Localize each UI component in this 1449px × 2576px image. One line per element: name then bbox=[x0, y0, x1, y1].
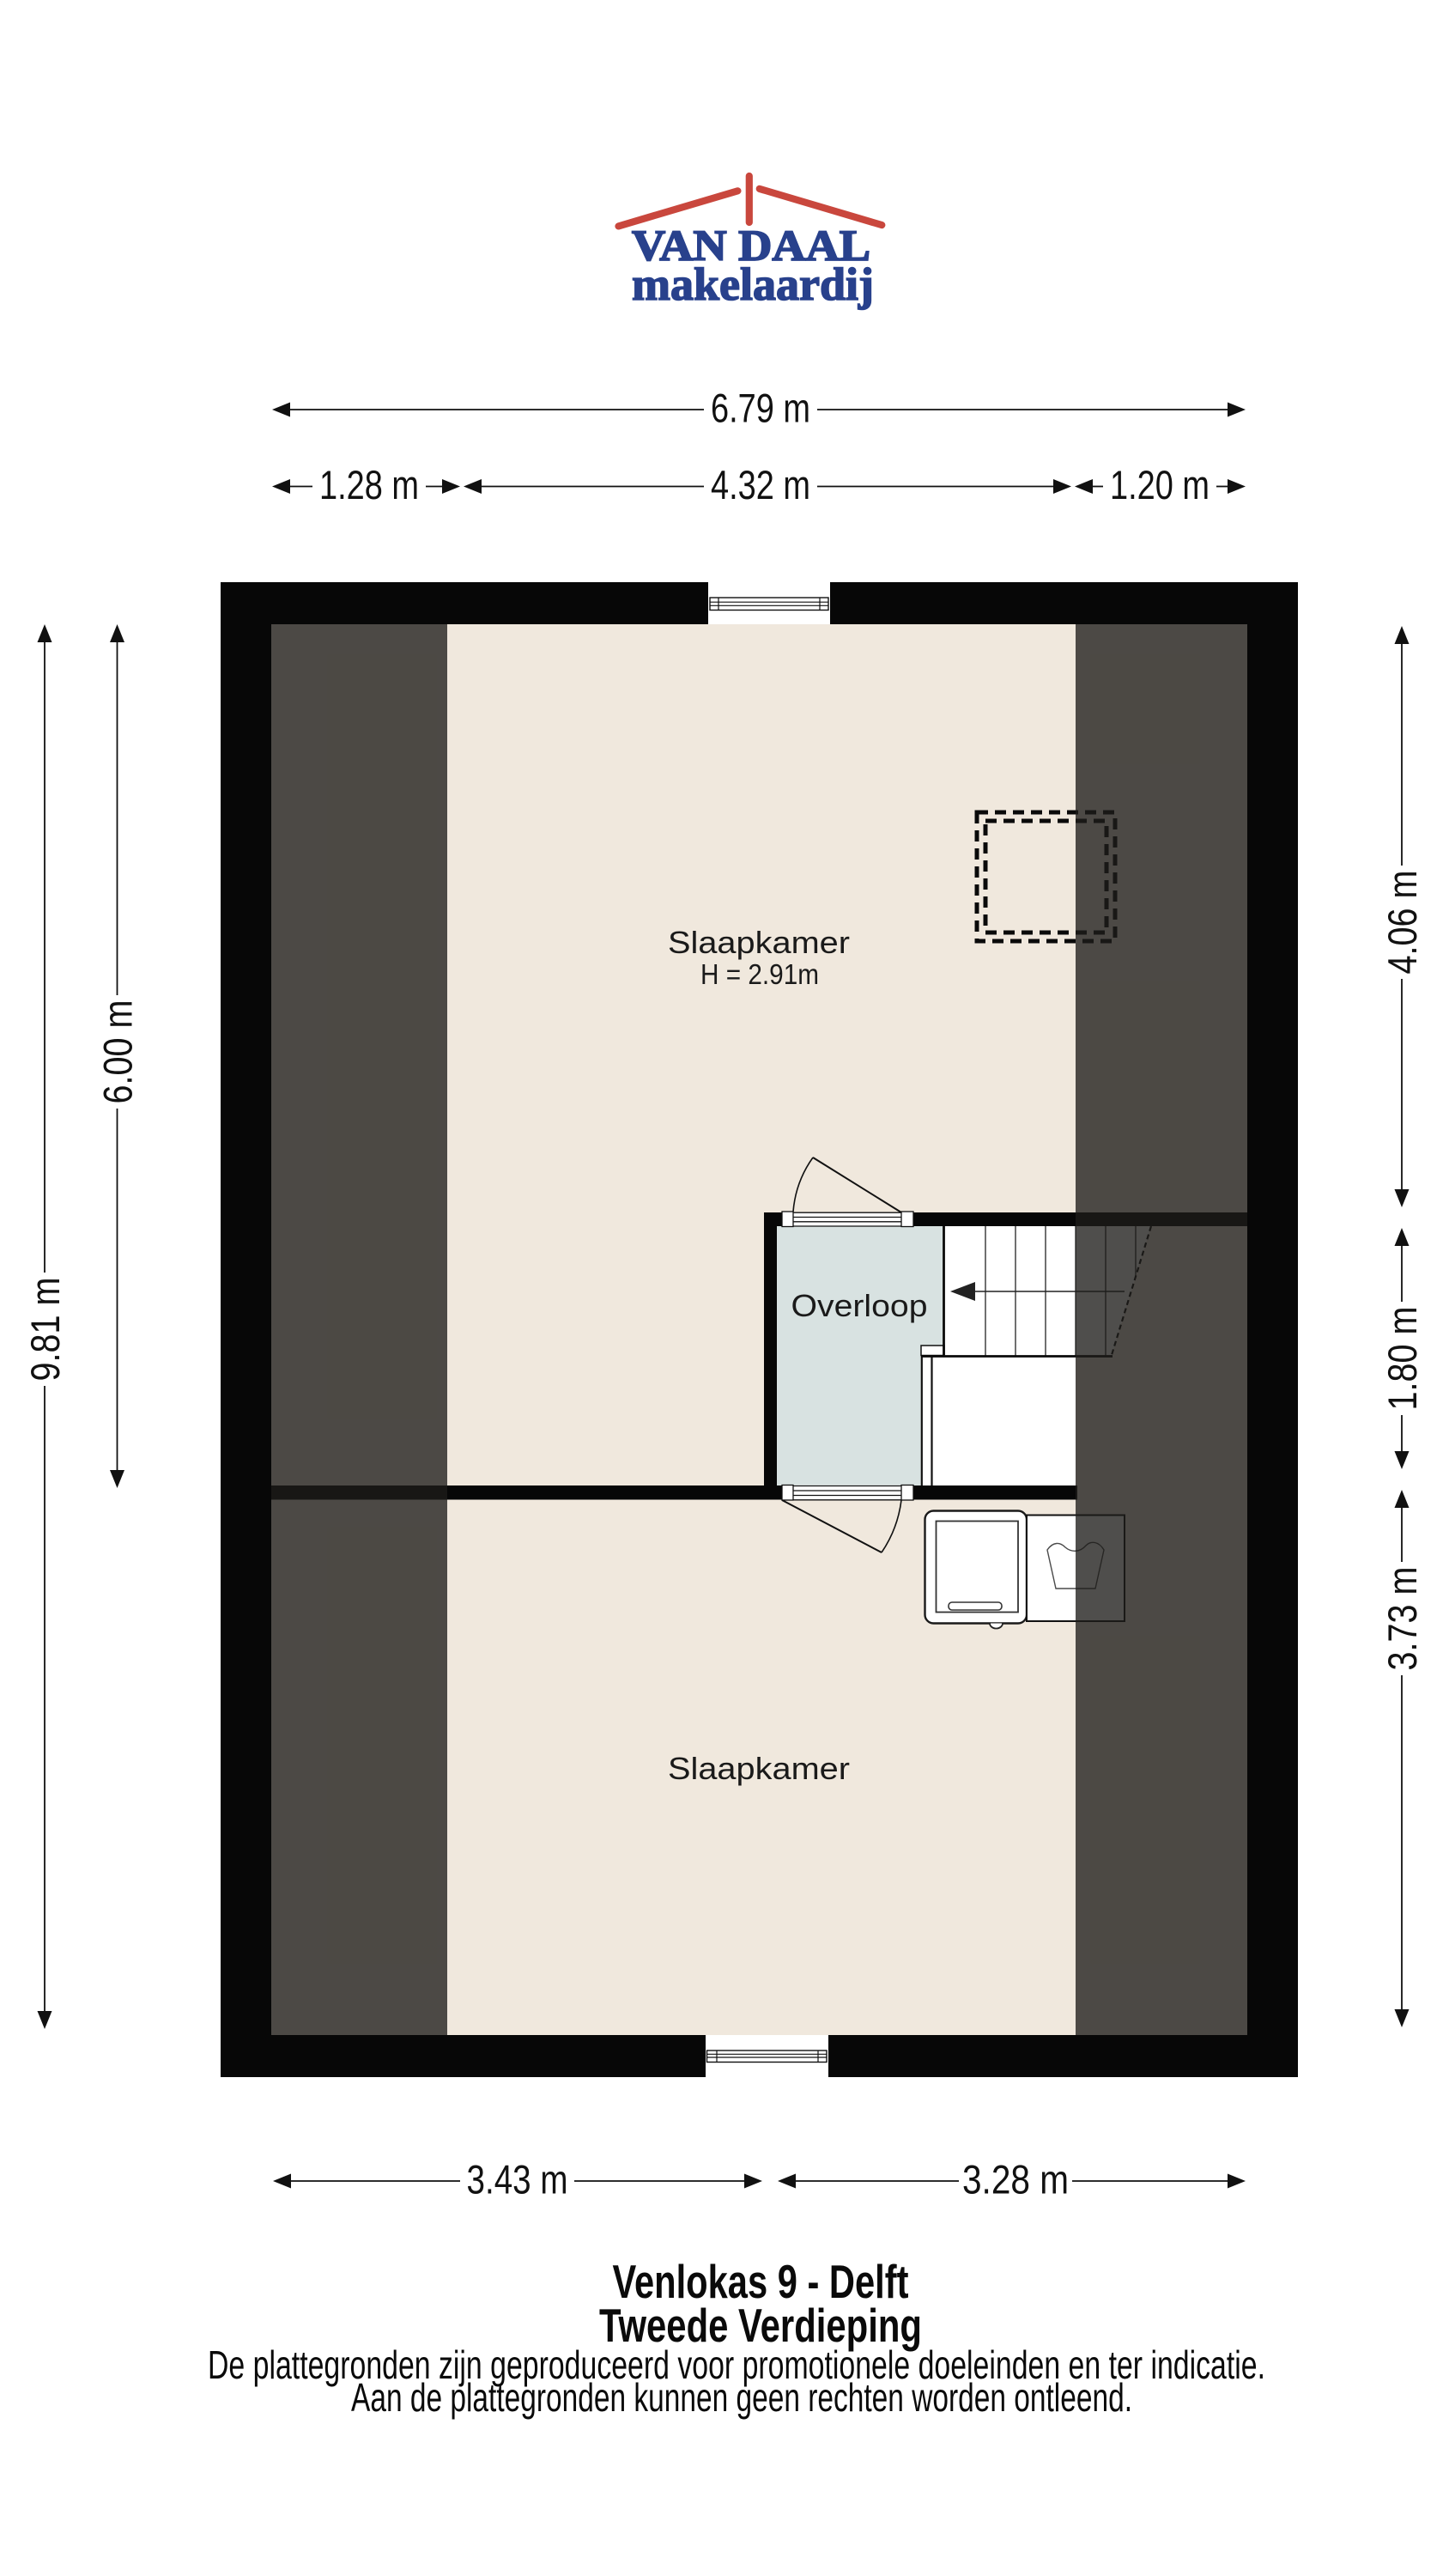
svg-text:Aan de plattegronden kunnen ge: Aan de plattegronden kunnen geen rechten… bbox=[351, 2375, 1132, 2420]
svg-text:3.28 m: 3.28 m bbox=[962, 2157, 1069, 2202]
svg-text:Slaapkamer: Slaapkamer bbox=[668, 925, 850, 960]
svg-text:3.73 m: 3.73 m bbox=[1379, 1567, 1425, 1671]
svg-text:Overloop: Overloop bbox=[791, 1288, 928, 1323]
svg-text:makelaardij: makelaardij bbox=[632, 258, 874, 310]
svg-text:6.00 m: 6.00 m bbox=[95, 1000, 141, 1104]
svg-text:9.81 m: 9.81 m bbox=[22, 1278, 68, 1382]
svg-text:6.79 m: 6.79 m bbox=[711, 386, 810, 431]
svg-text:4.32 m: 4.32 m bbox=[711, 462, 810, 507]
svg-text:3.43 m: 3.43 m bbox=[467, 2157, 568, 2202]
svg-text:1.20 m: 1.20 m bbox=[1110, 462, 1210, 507]
svg-text:1.28 m: 1.28 m bbox=[319, 462, 419, 507]
svg-text:Slaapkamer: Slaapkamer bbox=[668, 1751, 850, 1786]
svg-text:4.06 m: 4.06 m bbox=[1379, 871, 1425, 975]
svg-text:1.80 m: 1.80 m bbox=[1379, 1307, 1425, 1411]
svg-text:H = 2.91m: H = 2.91m bbox=[700, 959, 819, 991]
